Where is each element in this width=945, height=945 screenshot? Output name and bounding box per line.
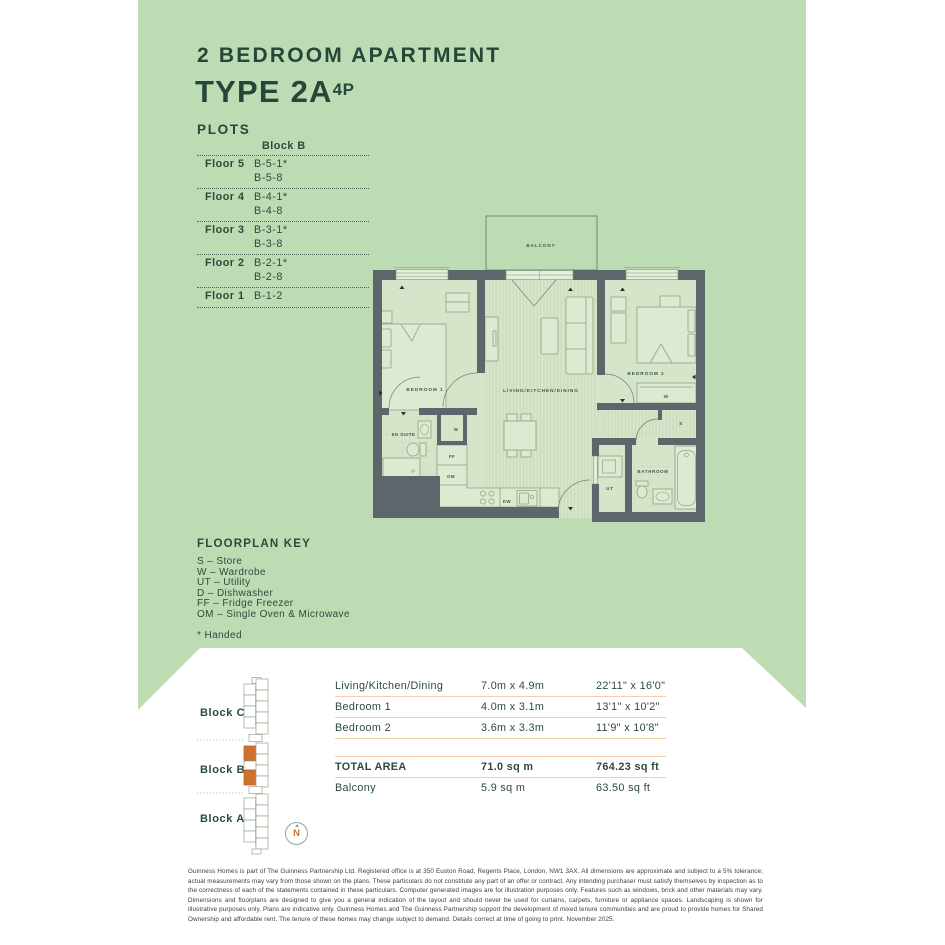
- plot-codes: B-5-1* B-5-8: [254, 158, 288, 185]
- total-label: TOTAL AREA: [335, 761, 481, 773]
- plot-code: B-1-2: [254, 290, 283, 304]
- plots-heading: PLOTS: [197, 122, 251, 137]
- plot-codes: B-1-2: [254, 290, 283, 304]
- metric-size: 7.0m x 4.9m: [481, 680, 596, 692]
- metric-size: 3.6m x 3.3m: [481, 722, 596, 734]
- floorplan-drawing: BALCONY BEDROOM 1 LIVING/KITCHEN/DINING …: [370, 210, 715, 530]
- balcony-imperial: 63.50 sq ft: [596, 782, 666, 794]
- plot-code: B-3-1*: [254, 224, 288, 238]
- label-ensuite: EN SUITE: [392, 432, 416, 437]
- dimension-row: Bedroom 1 4.0m x 3.1m 13'1" x 10'2": [335, 697, 666, 718]
- plot-codes: B-2-1* B-2-8: [254, 257, 288, 284]
- north-compass: N: [285, 822, 308, 845]
- plots-column-header: Block B: [197, 140, 369, 156]
- plot-codes: B-4-1* B-4-8: [254, 191, 288, 218]
- dimensions-table: Living/Kitchen/Dining 7.0m x 4.9m 22'11"…: [335, 676, 666, 798]
- floor-label: Floor 1: [197, 290, 254, 304]
- balcony-metric: 5.9 sq m: [481, 782, 596, 794]
- plot-code: B-2-8: [254, 271, 288, 285]
- site-plan-diagram: [195, 676, 295, 856]
- plot-code: B-2-1*: [254, 257, 288, 271]
- room-name: Bedroom 2: [335, 722, 481, 734]
- dimension-row: Living/Kitchen/Dining 7.0m x 4.9m 22'11"…: [335, 676, 666, 697]
- floor-label: Floor 3: [197, 224, 254, 238]
- label-wardrobe1: W: [454, 427, 459, 432]
- floor-label: Floor 4: [197, 191, 254, 205]
- floor-label: Floor 5: [197, 158, 254, 172]
- label-bedroom2: BEDROOM 2: [627, 371, 664, 377]
- plots-table: Block B Floor 5 B-5-1* B-5-8 Floor 4 B-4…: [197, 140, 369, 308]
- label-oven-microwave: OM: [447, 474, 455, 479]
- floorplan-key: FLOORPLAN KEY S – Store W – Wardrobe UT …: [197, 538, 350, 641]
- plot-code: B-5-1*: [254, 158, 288, 172]
- label-dishwasher: DW: [503, 499, 512, 504]
- brochure-page: 2 BEDROOM APARTMENT TYPE 2A4P PLOTS Bloc…: [0, 0, 945, 945]
- plot-code: B-4-8: [254, 205, 288, 219]
- total-metric: 71.0 sq m: [481, 761, 596, 773]
- site-blocks: [244, 678, 268, 855]
- label-store: S: [679, 421, 682, 426]
- apartment-type-title: TYPE 2A4P: [195, 74, 354, 110]
- imperial-size: 22'11" x 16'0": [596, 680, 666, 692]
- imperial-size: 13'1" x 10'2": [596, 701, 666, 713]
- plots-row-floor1: Floor 1 B-1-2: [197, 288, 369, 308]
- plots-row-floor2: Floor 2 B-2-1* B-2-8: [197, 255, 369, 288]
- plot-code: B-3-8: [254, 238, 288, 252]
- imperial-size: 11'9" x 10'8": [596, 722, 666, 734]
- site-dividers: [197, 740, 244, 793]
- plots-row-floor3: Floor 3 B-3-1* B-3-8: [197, 222, 369, 255]
- dimension-row: Bedroom 2 3.6m x 3.3m 11'9" x 10'8": [335, 718, 666, 739]
- legal-disclaimer: Guinness Homes is part of The Guinness P…: [188, 867, 763, 924]
- key-heading: FLOORPLAN KEY: [197, 538, 350, 550]
- label-fridge-freezer: FF: [449, 454, 455, 459]
- room-name: Bedroom 1: [335, 701, 481, 713]
- floor-label: Floor 2: [197, 257, 254, 271]
- label-bedroom1: BEDROOM 1: [406, 387, 443, 393]
- plots-row-floor4: Floor 4 B-4-1* B-4-8: [197, 189, 369, 222]
- plot-code: B-4-1*: [254, 191, 288, 205]
- label-wardrobe2: W: [664, 394, 669, 399]
- apartment-subtitle: 2 BEDROOM APARTMENT: [197, 44, 501, 68]
- key-item: S – Store: [197, 557, 350, 568]
- label-living: LIVING/KITCHEN/DINING: [503, 388, 579, 394]
- key-footnote: * Handed: [197, 630, 350, 641]
- north-label: N: [293, 828, 300, 839]
- plots-row-floor5: Floor 5 B-5-1* B-5-8: [197, 156, 369, 189]
- plot-codes: B-3-1* B-3-8: [254, 224, 288, 251]
- metric-size: 4.0m x 3.1m: [481, 701, 596, 713]
- balcony-row: Balcony 5.9 sq m 63.50 sq ft: [335, 778, 666, 798]
- type-title-text: TYPE 2A: [195, 74, 333, 109]
- label-bathroom: BATHROOM: [637, 469, 668, 474]
- label-utility: UT: [606, 486, 614, 491]
- table-spacer: [335, 739, 666, 757]
- total-area-row: TOTAL AREA 71.0 sq m 764.23 sq ft: [335, 757, 666, 778]
- room-name: Living/Kitchen/Dining: [335, 680, 481, 692]
- type-superscript: 4P: [333, 80, 355, 99]
- total-imperial: 764.23 sq ft: [596, 761, 666, 773]
- key-item: OM – Single Oven & Microwave: [197, 610, 350, 621]
- compass-tick: [295, 824, 299, 827]
- label-balcony: BALCONY: [526, 243, 555, 248]
- balcony-label: Balcony: [335, 782, 481, 794]
- plot-code: B-5-8: [254, 172, 288, 186]
